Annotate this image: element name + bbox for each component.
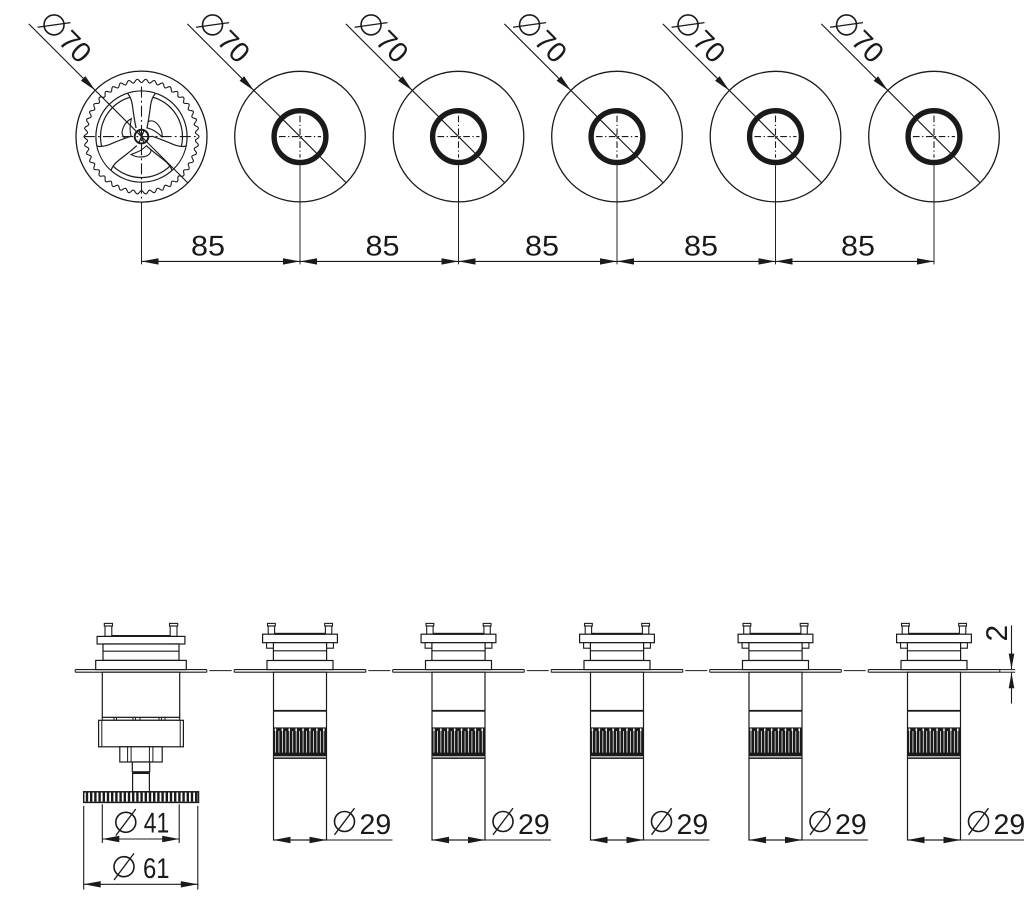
svg-text:85: 85: [525, 231, 559, 263]
svg-text:41: 41: [144, 808, 170, 840]
svg-text:85: 85: [841, 231, 875, 263]
svg-text:29: 29: [994, 809, 1024, 841]
svg-text:85: 85: [684, 231, 718, 263]
svg-text:29: 29: [835, 809, 867, 841]
svg-text:85: 85: [366, 231, 400, 263]
svg-text:29: 29: [518, 809, 550, 841]
svg-text:2: 2: [981, 625, 1014, 642]
svg-text:61: 61: [143, 853, 170, 885]
svg-text:29: 29: [677, 809, 709, 841]
svg-text:85: 85: [191, 231, 225, 263]
svg-text:29: 29: [360, 809, 392, 841]
